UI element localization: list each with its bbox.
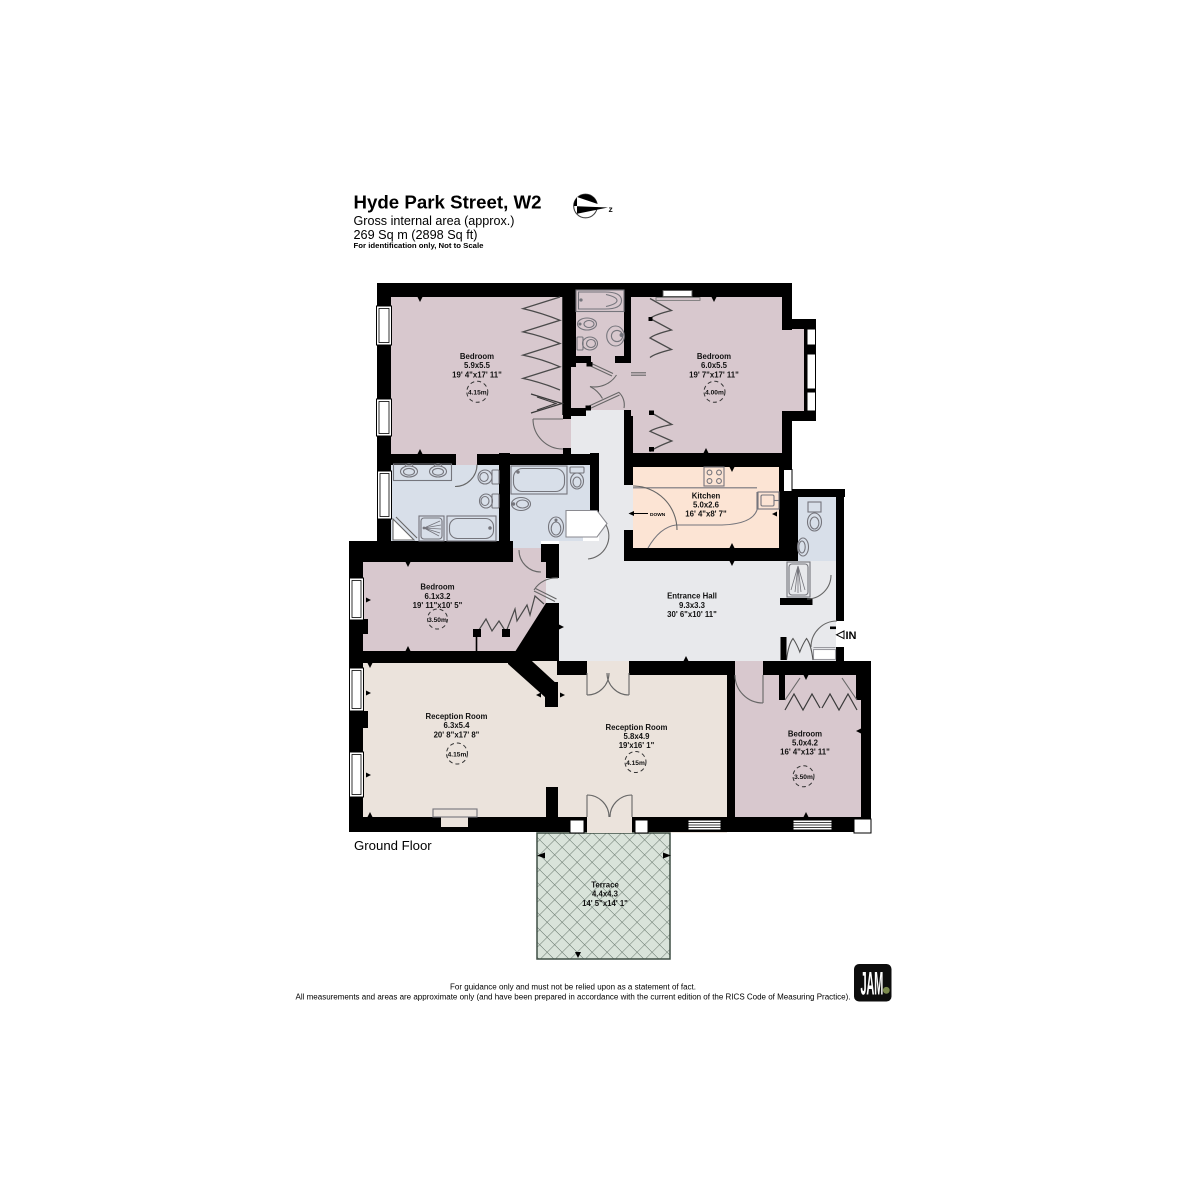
svg-text:19' 4"x17' 11": 19' 4"x17' 11" [452,370,502,379]
svg-text:Reception Room: Reception Room [606,723,668,732]
svg-text:4.4x4.3: 4.4x4.3 [592,890,619,899]
svg-text:5.8x4.9: 5.8x4.9 [623,732,650,741]
svg-text:5.9x5.5: 5.9x5.5 [464,361,491,370]
svg-text:14' 5"x14' 1": 14' 5"x14' 1" [582,899,628,908]
svg-text:Bedroom: Bedroom [788,729,822,738]
svg-text:Bedroom: Bedroom [697,352,731,361]
svg-text:DOWN: DOWN [650,512,666,518]
svg-text:3.50m: 3.50m [794,774,813,781]
svg-text:4.00m: 4.00m [705,390,724,397]
svg-text:JAM: JAM [861,966,884,1002]
svg-text:Reception Room: Reception Room [426,712,488,721]
svg-text:For guidance only and must not: For guidance only and must not be relied… [450,983,696,992]
svg-text:5.0x4.2: 5.0x4.2 [792,739,819,748]
svg-text:Entrance Hall: Entrance Hall [667,592,717,601]
svg-text:4.15m: 4.15m [626,760,645,767]
svg-text:Bedroom: Bedroom [460,352,494,361]
svg-text:4.15m: 4.15m [468,390,487,397]
svg-text:3.50m: 3.50m [428,617,447,624]
svg-text:16' 4"x13' 11": 16' 4"x13' 11" [780,748,830,757]
svg-text:Gross internal area (approx.): Gross internal area (approx.) [354,213,515,228]
svg-text:Terrace: Terrace [591,881,619,890]
svg-text:6.1x3.2: 6.1x3.2 [424,592,451,601]
svg-text:30' 6"x10' 11": 30' 6"x10' 11" [667,610,717,619]
svg-text:6.0x5.5: 6.0x5.5 [701,361,728,370]
svg-text:Hyde Park Street, W2: Hyde Park Street, W2 [354,192,542,213]
svg-text:269 Sq m (2898 Sq ft): 269 Sq m (2898 Sq ft) [354,227,478,242]
svg-text:6.3x5.4: 6.3x5.4 [443,721,470,730]
svg-text:19'x16' 1": 19'x16' 1" [619,741,655,750]
svg-text:9.3x3.3: 9.3x3.3 [679,601,706,610]
svg-text:Ground Floor: Ground Floor [354,838,432,853]
svg-text:19' 7"x17' 11": 19' 7"x17' 11" [689,370,739,379]
svg-text:5.0x2.6: 5.0x2.6 [693,501,720,510]
svg-text:z: z [609,204,613,214]
svg-text:For identification only, Not t: For identification only, Not to Scale [354,241,484,250]
svg-text:19' 11"x10' 5": 19' 11"x10' 5" [413,601,463,610]
svg-text:All measurements and areas are: All measurements and areas are approxima… [296,993,851,1002]
svg-text:Kitchen: Kitchen [692,491,721,500]
svg-text:4.15m: 4.15m [448,751,467,758]
svg-text:16' 4"x8' 7": 16' 4"x8' 7" [685,510,727,519]
svg-text:20' 8"x17' 8": 20' 8"x17' 8" [434,730,480,739]
svg-text:IN: IN [846,630,857,642]
svg-text:Bedroom: Bedroom [420,583,454,592]
